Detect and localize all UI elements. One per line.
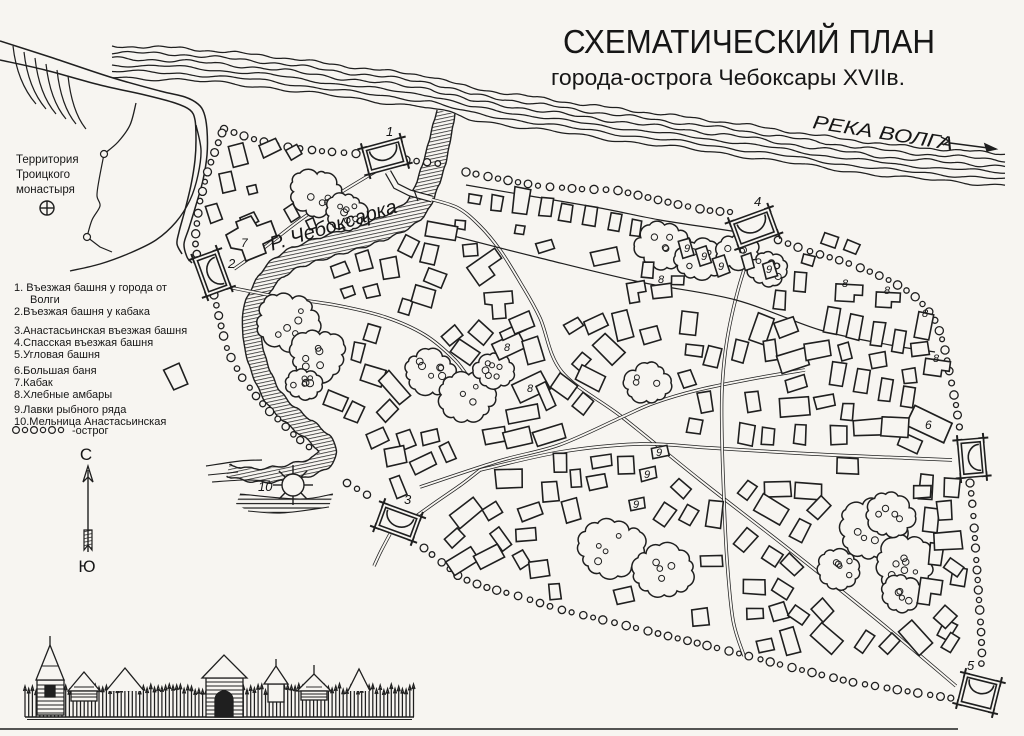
- svg-text:9: 9: [766, 264, 772, 276]
- svg-text:монастыря: монастыря: [16, 184, 75, 196]
- svg-text:6.Большая баня: 6.Большая баня: [14, 365, 97, 377]
- svg-text:5.Угловая башня: 5.Угловая башня: [14, 349, 100, 361]
- svg-text:4: 4: [754, 194, 761, 209]
- svg-text:Ю: Ю: [78, 557, 95, 576]
- svg-text:3.Анастасьинская въезжая башня: 3.Анастасьинская въезжая башня: [14, 325, 187, 337]
- svg-text:8: 8: [933, 353, 940, 365]
- svg-text:1. Въезжая башня у города от: 1. Въезжая башня у города от: [14, 282, 167, 294]
- svg-text:города-острога Чебоксары XVIIв: города-острога Чебоксары XVIIв.: [551, 65, 905, 90]
- svg-text:9: 9: [644, 469, 650, 481]
- svg-text:8: 8: [527, 383, 534, 395]
- svg-text:9: 9: [701, 251, 707, 263]
- svg-text:5: 5: [967, 658, 975, 673]
- svg-text:4.Спасская въезжая башня: 4.Спасская въезжая башня: [14, 337, 153, 349]
- svg-text:1: 1: [386, 124, 393, 139]
- svg-text:8: 8: [842, 278, 849, 290]
- svg-text:СХЕМАТИЧЕСКИЙ ПЛАН: СХЕМАТИЧЕСКИЙ ПЛАН: [563, 23, 935, 60]
- svg-text:8: 8: [922, 308, 929, 320]
- svg-text:8: 8: [884, 285, 891, 297]
- svg-text:Волги: Волги: [30, 294, 60, 306]
- svg-text:9: 9: [633, 499, 639, 511]
- svg-text:Территория: Территория: [16, 154, 79, 166]
- svg-text:10: 10: [258, 479, 273, 494]
- svg-text:3: 3: [404, 492, 412, 507]
- svg-text:Троицкого: Троицкого: [16, 169, 70, 181]
- svg-text:7.Кабак: 7.Кабак: [14, 377, 53, 389]
- svg-text:9: 9: [718, 261, 724, 273]
- svg-text:8: 8: [658, 274, 665, 286]
- svg-text:8: 8: [504, 342, 511, 354]
- svg-text:2.Въезжая башня у кабака: 2.Въезжая башня у кабака: [14, 306, 151, 318]
- svg-text:С: С: [80, 445, 92, 464]
- svg-text:-острог: -острог: [72, 425, 109, 437]
- svg-text:8.Хлебные амбары: 8.Хлебные амбары: [14, 389, 112, 401]
- svg-text:6: 6: [925, 418, 932, 432]
- svg-text:9: 9: [684, 243, 690, 255]
- svg-text:9: 9: [656, 447, 662, 459]
- svg-text:9.Лавки рыбного ряда: 9.Лавки рыбного ряда: [14, 404, 127, 416]
- svg-text:2: 2: [227, 256, 236, 271]
